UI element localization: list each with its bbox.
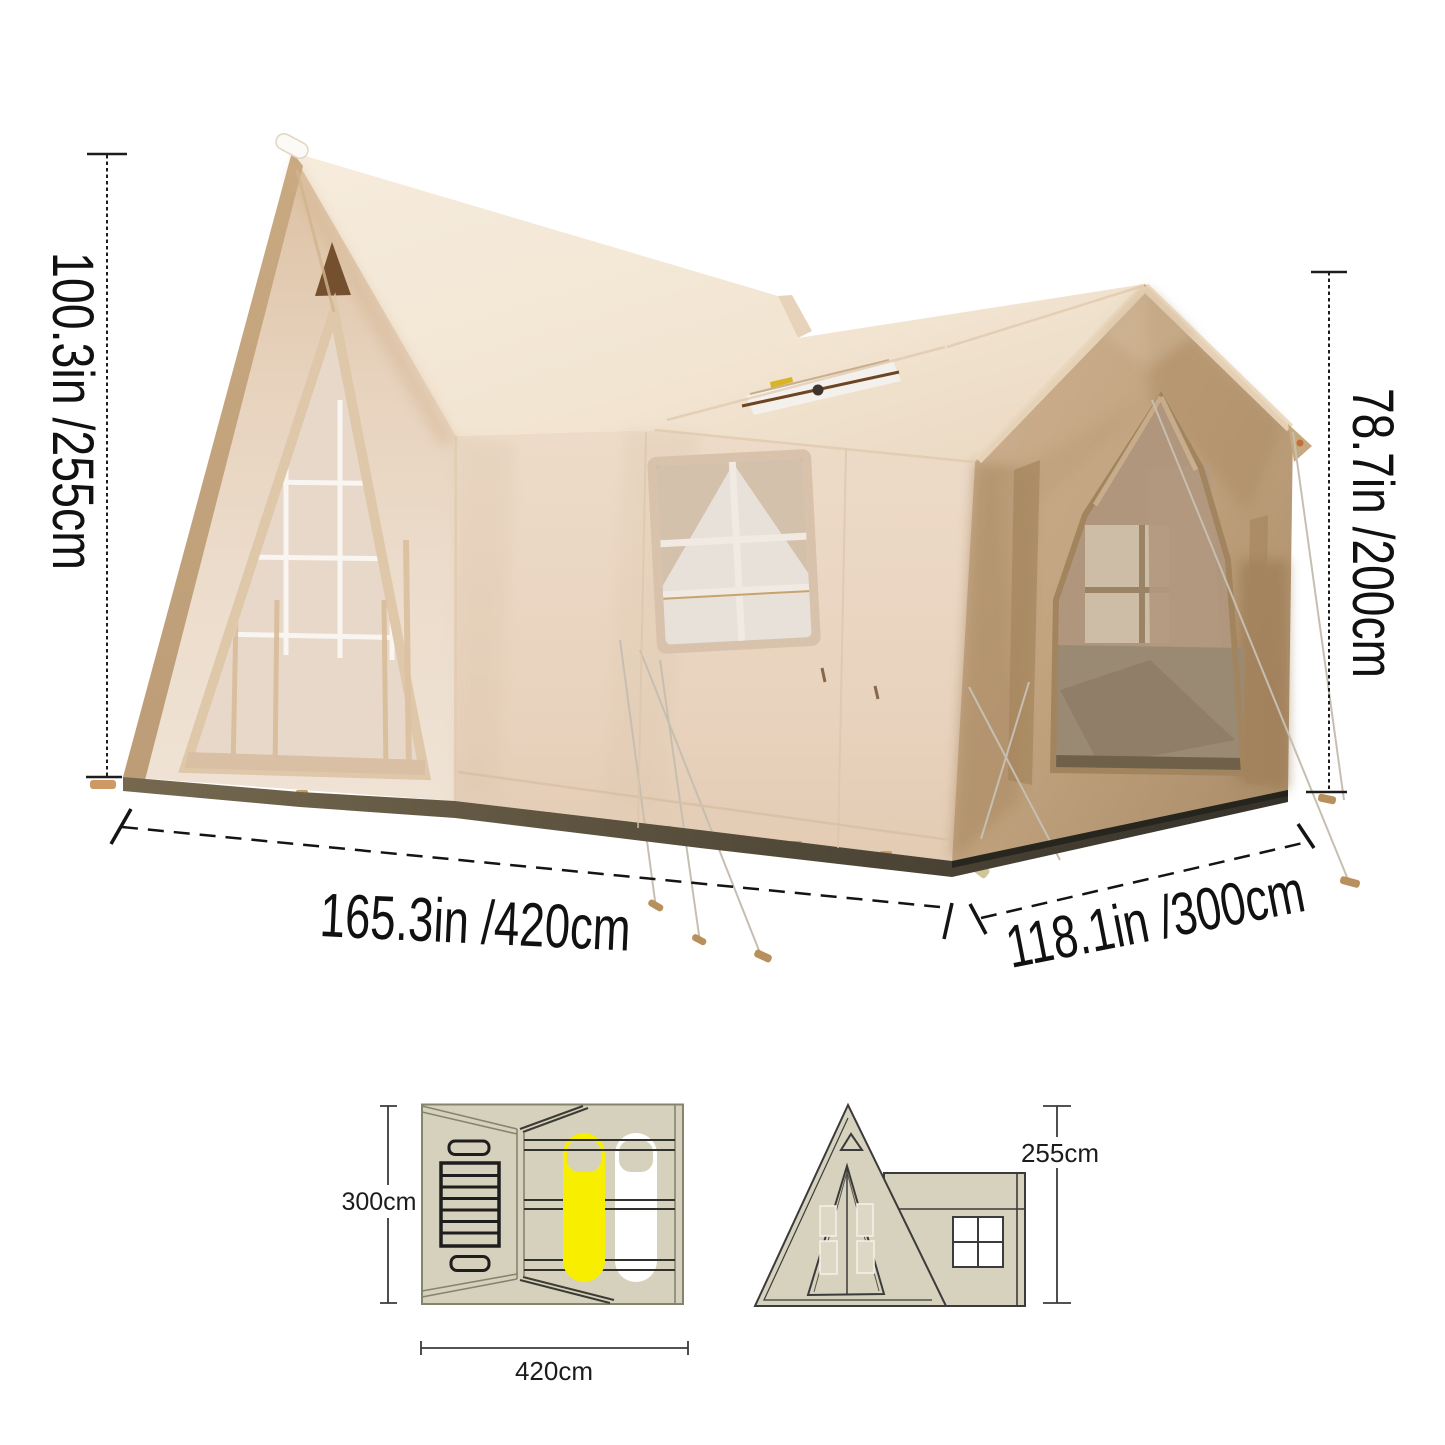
svg-text:300cm: 300cm [341, 1188, 416, 1216]
svg-text:255cm: 255cm [1021, 1138, 1099, 1168]
svg-text:100.3in /255cm: 100.3in /255cm [40, 252, 105, 570]
svg-text:78.7in /200cm: 78.7in /200cm [1340, 388, 1405, 678]
svg-text:165.3in /420cm: 165.3in /420cm [318, 881, 632, 965]
svg-text:420cm: 420cm [515, 1356, 593, 1386]
